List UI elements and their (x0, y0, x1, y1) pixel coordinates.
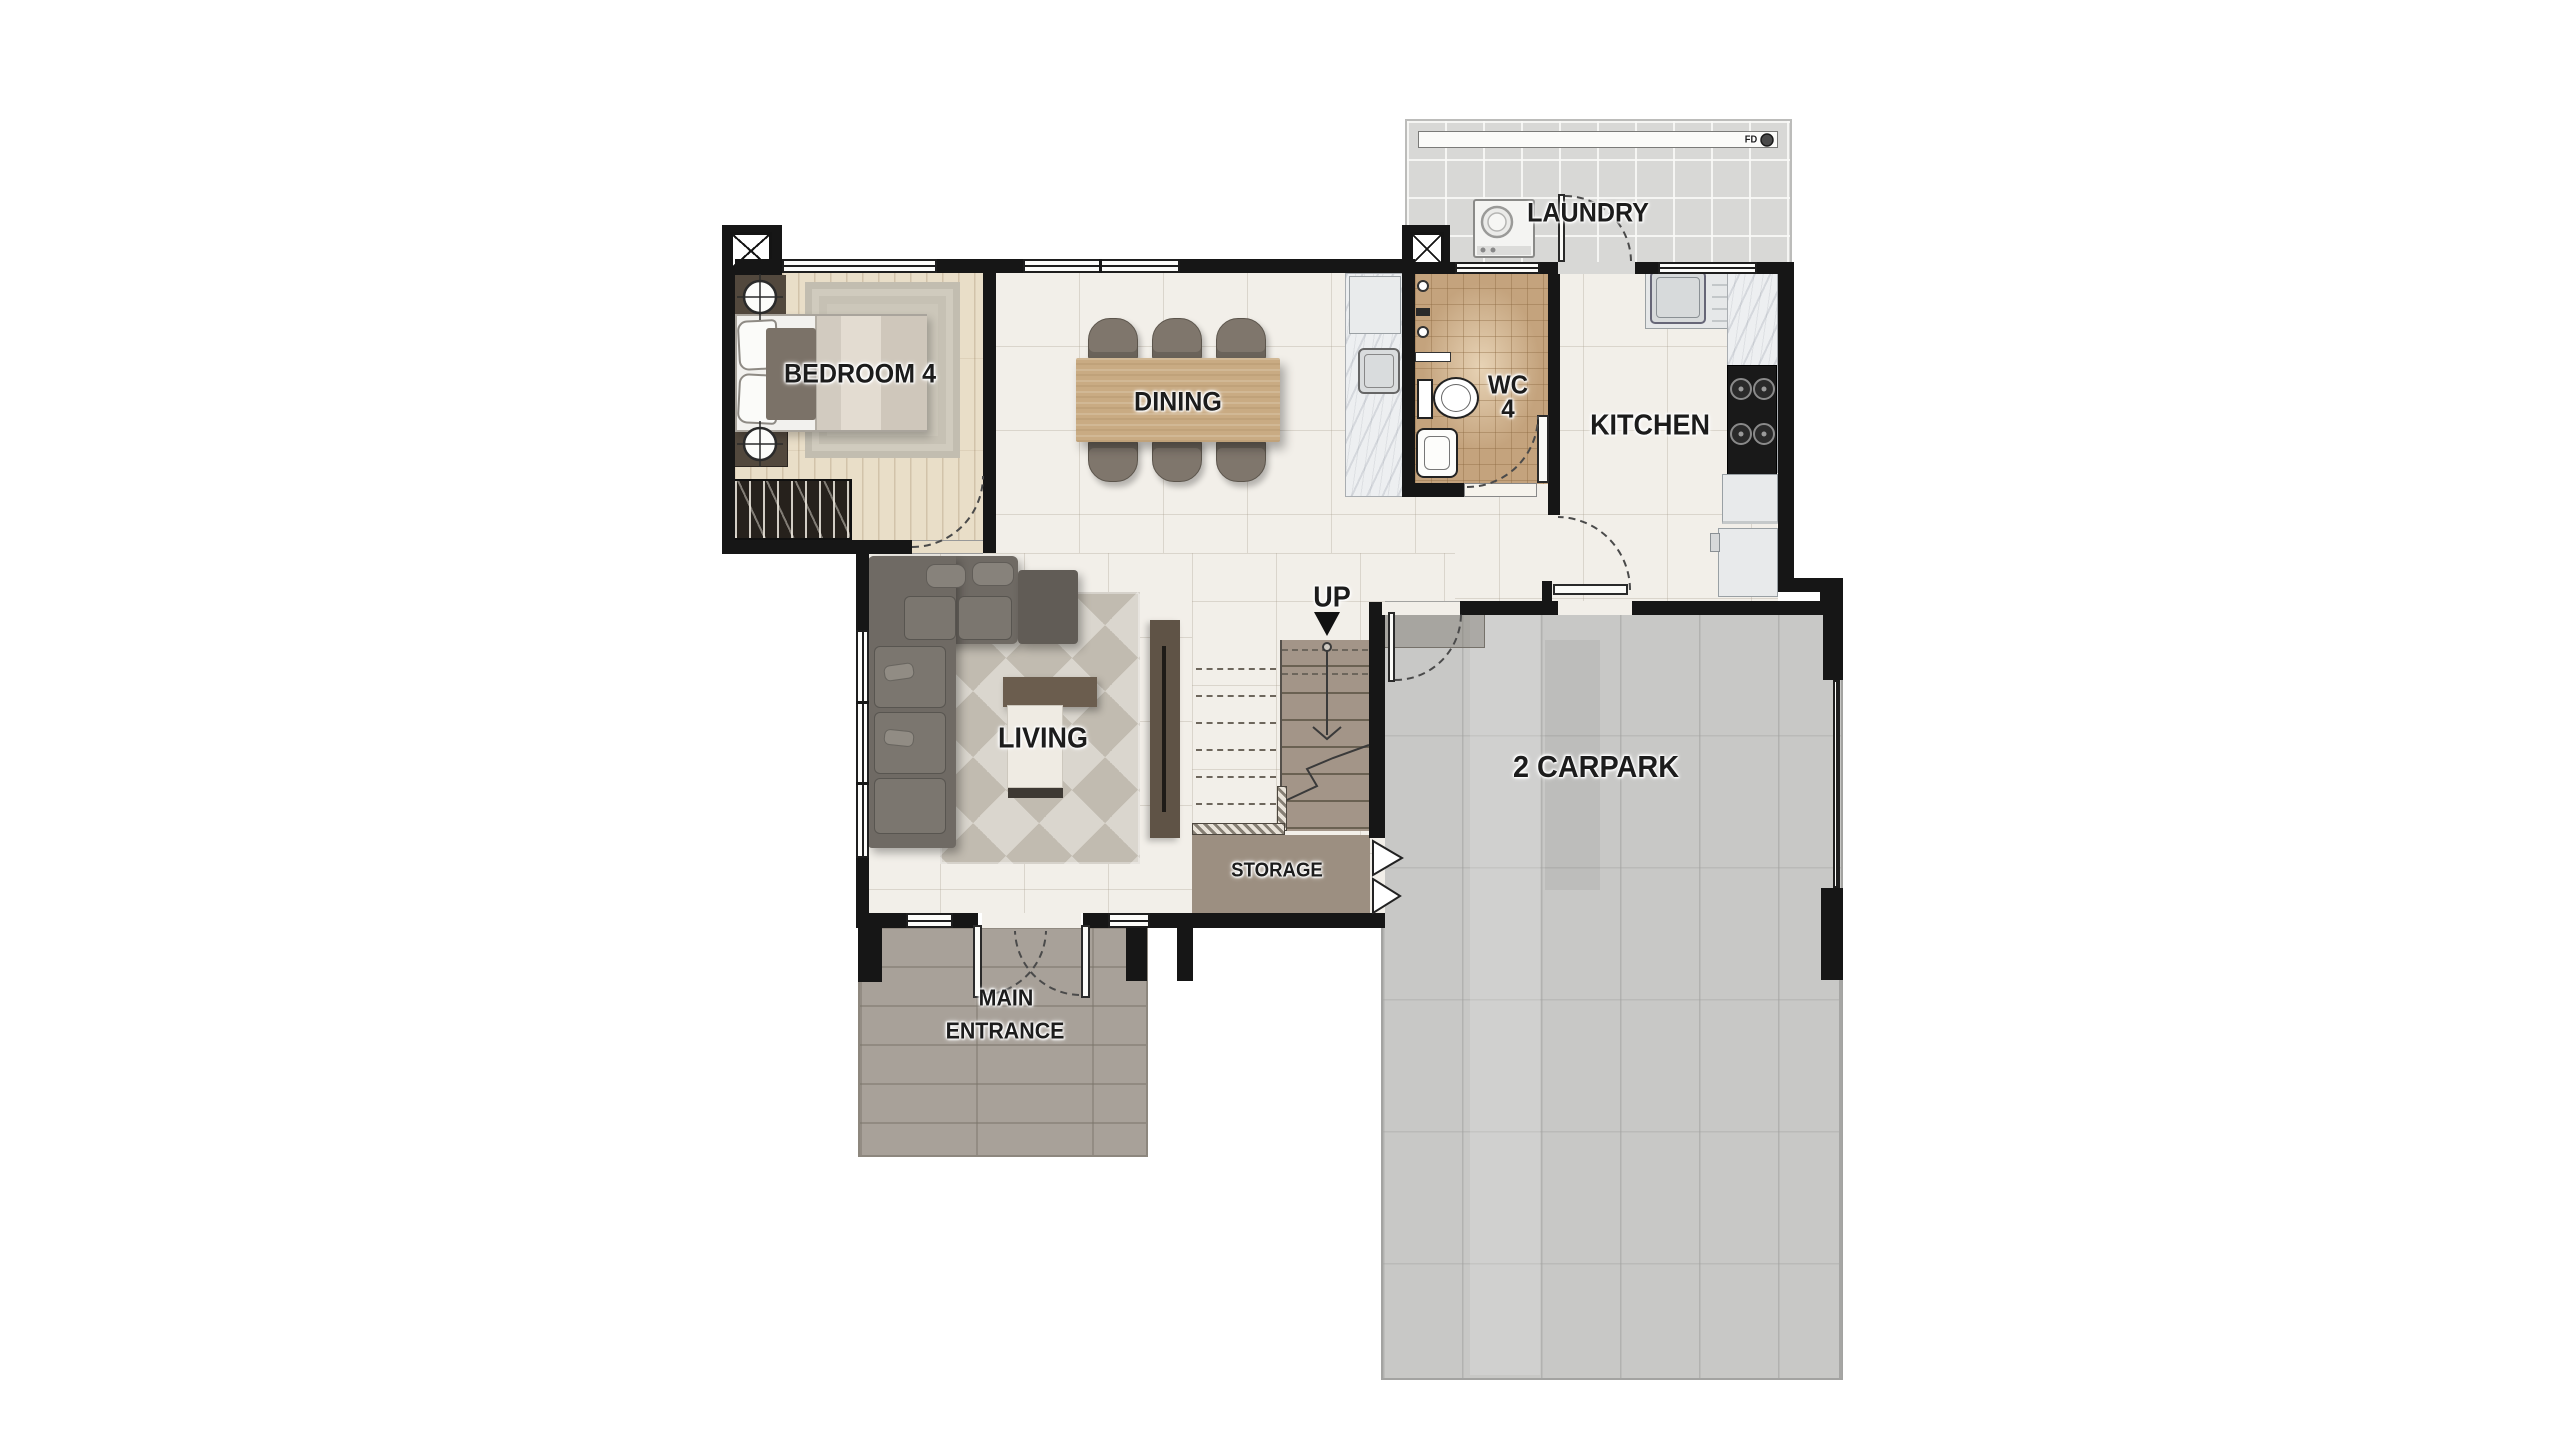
wc-sink-basin (1424, 436, 1450, 470)
wall (1548, 262, 1560, 515)
wall (1150, 913, 1385, 928)
door-opening (1464, 483, 1537, 497)
window (856, 630, 869, 858)
sofa-cushion (904, 596, 956, 640)
window-mullion (1099, 259, 1102, 273)
wall (1823, 615, 1843, 680)
room-label-laundry: LAUNDRY (1527, 198, 1649, 229)
room-label-entrance-line1: MAIN (979, 985, 1034, 1012)
wc-accessory (1416, 308, 1430, 316)
wall (1180, 259, 1415, 273)
stair-dashed-line (1196, 749, 1276, 751)
coffee-table-end (1008, 788, 1063, 798)
nightstand (734, 275, 786, 317)
sofa-back-pillow (972, 562, 1014, 586)
shaft-x-box (1410, 232, 1444, 266)
dining-chair (1088, 438, 1138, 482)
wall (735, 259, 782, 273)
refrigerator (1718, 528, 1778, 597)
room-label-kitchen: KITCHEN (1590, 410, 1710, 443)
wall (1369, 602, 1385, 838)
wall (1757, 262, 1792, 274)
hall-counter-sink-basin (1364, 354, 1394, 388)
dining-chair (1152, 318, 1202, 362)
door-leaf (1388, 612, 1395, 682)
stair-dashed-line (1196, 668, 1276, 670)
dining-chair (1088, 318, 1138, 362)
wall-stub (1542, 581, 1552, 603)
stair-dashed-line (1196, 776, 1276, 778)
refrigerator-handle (1710, 533, 1720, 552)
door-opening (912, 540, 983, 554)
carpark-fence (1833, 680, 1840, 888)
stair-flight (1280, 640, 1372, 831)
tv (1162, 646, 1166, 812)
entrance-door-leaf (1081, 925, 1090, 998)
door-opening (982, 913, 1081, 928)
door-opening (1558, 601, 1632, 615)
window-mullion (856, 782, 869, 785)
room-label-entrance-line2: ENTRANCE (946, 1018, 1065, 1045)
wall (937, 259, 1023, 273)
coffee-table (1003, 677, 1097, 707)
door-leaf (1537, 415, 1549, 483)
toilet-bowl-inner (1441, 384, 1471, 412)
room-label-wc4-line2: 4 (1501, 394, 1514, 425)
stair-dashed-line (1282, 649, 1368, 651)
sofa-cushion (874, 778, 946, 834)
porch-pillar (1126, 928, 1147, 981)
stair-dashed-line (1196, 695, 1276, 697)
porch-pillar (858, 928, 882, 982)
window (782, 259, 937, 273)
wardrobe (733, 479, 852, 540)
stair-dashed-line (1196, 722, 1276, 724)
stair-dashed-line (1196, 803, 1276, 805)
wall (1778, 262, 1794, 592)
wall (1402, 483, 1464, 497)
wall (1402, 262, 1455, 274)
stair-low-wall (1192, 823, 1285, 835)
sofa-cushion (958, 596, 1012, 640)
wall (1632, 601, 1843, 615)
window (1455, 262, 1540, 274)
window (906, 913, 953, 928)
wall (722, 540, 912, 554)
wall (1635, 262, 1658, 274)
laundry-shelf (1418, 131, 1778, 148)
sofa-lumbar-pillow (883, 728, 915, 747)
stair-dashed-line (1282, 673, 1368, 675)
kitchen-sink-basin (1656, 277, 1700, 318)
wall (856, 858, 869, 920)
carpark-floor (1381, 601, 1843, 1380)
carpark-boundary-line (1839, 980, 1842, 1378)
wall (856, 553, 869, 630)
wall (856, 913, 906, 928)
room-label-living: LIVING (998, 723, 1088, 756)
toilet-tank (1417, 379, 1433, 419)
window-mullion (856, 701, 869, 704)
room-label-bedroom4: BEDROOM 4 (784, 359, 936, 390)
pillar (1177, 928, 1193, 981)
floor-plan-canvas: BEDROOM 4 DINING WC 4 KITCHEN LAUNDRY LI… (0, 0, 2560, 1456)
wc-shelf (1415, 352, 1451, 362)
carpark-light-band (1470, 615, 1540, 1375)
washing-machine-panel (1477, 246, 1531, 255)
wc-accessory (1417, 280, 1429, 292)
carpark-pillar (1821, 888, 1843, 980)
sofa-chaise (1018, 570, 1078, 644)
carpark-door-landing (1380, 612, 1485, 648)
stove-cooktop (1727, 365, 1777, 475)
room-label-dining: DINING (1134, 387, 1222, 418)
dining-chair (1152, 438, 1202, 482)
dining-chair (1216, 318, 1266, 362)
sofa-back-pillow (926, 564, 966, 588)
wc-accessory (1417, 326, 1429, 338)
refrigerator (1722, 474, 1778, 524)
door-opening (1558, 262, 1635, 274)
window (1108, 913, 1150, 928)
wall (1460, 601, 1558, 615)
stairs-up-label: UP (1313, 582, 1350, 615)
wall (1402, 259, 1415, 497)
room-label-carpark: 2 CARPARK (1513, 749, 1679, 785)
up-arrow-triangle (1314, 612, 1340, 636)
dining-chair (1216, 438, 1266, 482)
wall (983, 273, 996, 553)
room-label-storage: STORAGE (1231, 860, 1323, 883)
window (1658, 262, 1757, 274)
floor-drain-label: FD (1745, 135, 1757, 146)
door-leaf (1553, 584, 1628, 595)
wall (1540, 262, 1558, 274)
hall-counter-cabinet (1349, 276, 1401, 334)
